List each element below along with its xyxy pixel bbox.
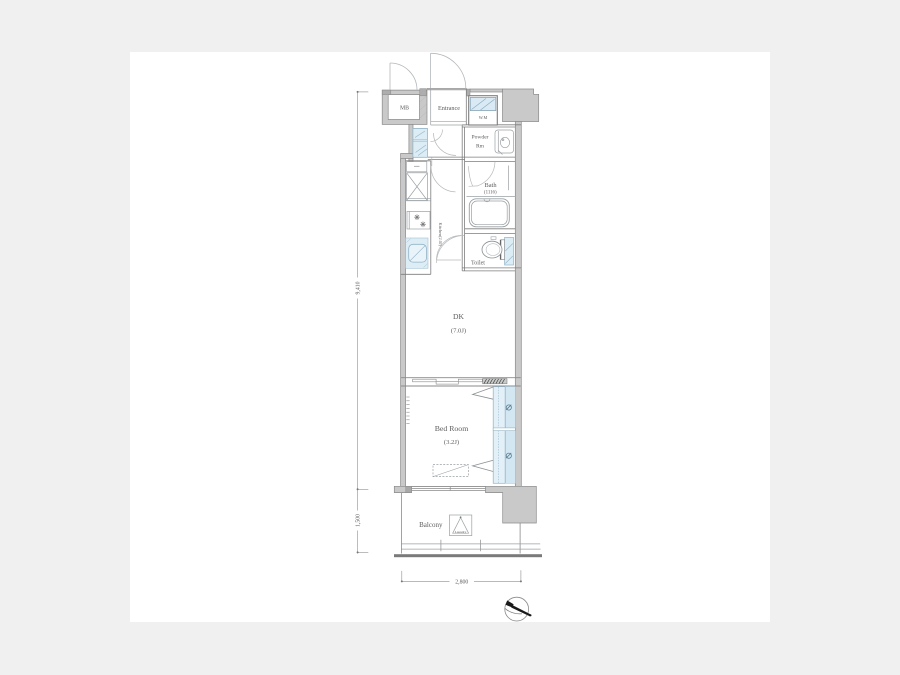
svg-text:Toilet: Toilet	[471, 261, 485, 267]
svg-text:W.M: W.M	[479, 115, 488, 120]
svg-text:Bath: Bath	[484, 182, 497, 189]
svg-text:Entrance: Entrance	[438, 105, 460, 112]
svg-text:2,800: 2,800	[455, 580, 468, 586]
svg-text:1,500: 1,500	[355, 514, 361, 527]
svg-text:Bed Room: Bed Room	[435, 424, 469, 433]
svg-text:Powder: Powder	[471, 135, 488, 141]
svg-text:Kitchen(2.0J): Kitchen(2.0J)	[438, 223, 443, 247]
svg-text:DK: DK	[453, 312, 464, 321]
svg-text:9,410: 9,410	[355, 281, 361, 294]
svg-text:Rm: Rm	[476, 144, 485, 150]
svg-text:Laundry: Laundry	[455, 530, 467, 534]
svg-text:(1116): (1116)	[484, 190, 497, 195]
svg-text:Balcony: Balcony	[419, 521, 443, 529]
svg-text:(7.0J): (7.0J)	[451, 328, 466, 335]
svg-text:MB: MB	[400, 106, 409, 112]
svg-text:(3.2J): (3.2J)	[444, 439, 459, 446]
